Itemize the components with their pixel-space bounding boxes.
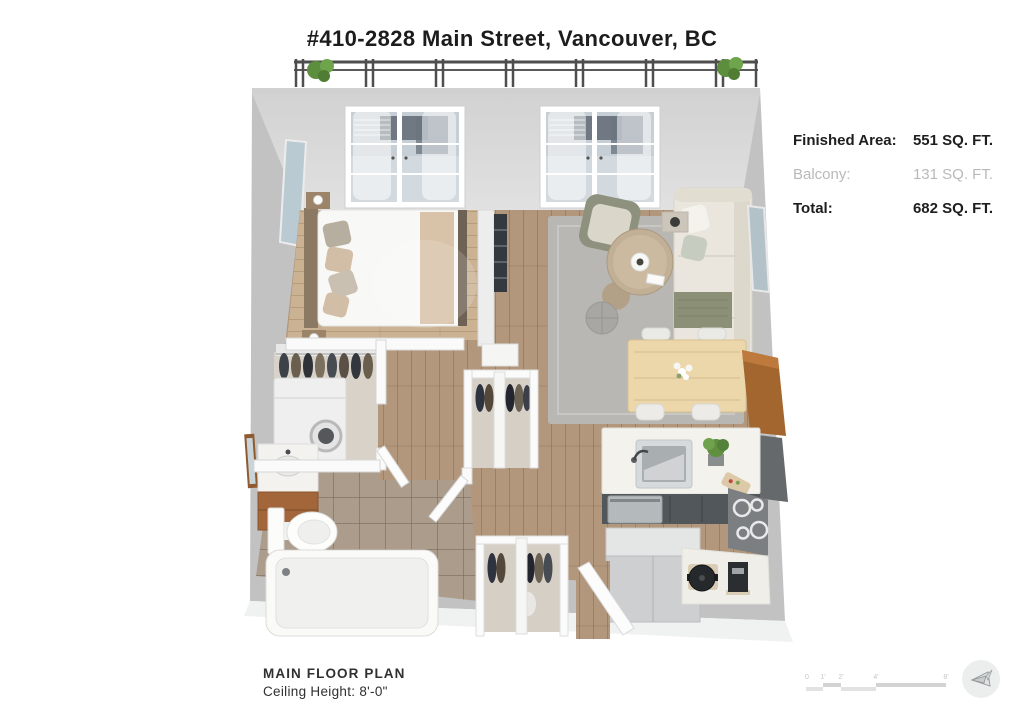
dining-chair (636, 404, 664, 420)
hallway-bookshelf (494, 214, 507, 292)
plan-footer: MAIN FLOOR PLAN Ceiling Height: 8'-0" (263, 666, 406, 699)
sofa-throw (674, 292, 732, 328)
dining-chair (692, 404, 720, 420)
page-title: #410-2828 Main Street, Vancouver, BC (0, 26, 1024, 52)
divider-wall (478, 210, 494, 346)
scale-tick-4: 4' (873, 674, 878, 681)
closet-middle (464, 370, 538, 468)
coffee-maker (726, 562, 750, 595)
ceiling-height: Ceiling Height: 8'-0" (263, 684, 406, 699)
closet-bottom (476, 536, 568, 636)
side-table (662, 212, 688, 232)
balcony-plant-right (717, 57, 743, 80)
floor-plan-svg (230, 56, 800, 671)
hall-cabinet (482, 344, 518, 366)
scale-tick-2: 2' (838, 674, 843, 681)
stat-row-balcony: Balcony: 131 SQ. FT. (793, 166, 993, 183)
dining-set (628, 328, 746, 420)
back-wall-top (252, 88, 760, 93)
finished-area-value: 551 SQ. FT. (913, 132, 993, 149)
ottoman (586, 302, 618, 334)
nightstand-top (306, 192, 330, 209)
brand-logo-icon (958, 656, 1004, 702)
closet-door-panel (516, 538, 527, 634)
balcony-label: Balcony: (793, 166, 851, 183)
finished-area-label: Finished Area: (793, 132, 897, 149)
french-door-living (540, 106, 660, 208)
cooktop-counter (728, 488, 768, 556)
tub-faucet (282, 568, 290, 576)
area-stats: Finished Area: 551 SQ. FT. Balcony: 131 … (793, 132, 993, 234)
total-value: 682 SQ. FT. (913, 200, 993, 217)
bedroom-sheer-light (373, 240, 477, 328)
floor-plan-render (230, 56, 800, 671)
plan-name: MAIN FLOOR PLAN (263, 666, 406, 681)
closet-door-panel (494, 372, 505, 468)
balcony-railing (294, 57, 758, 87)
stat-row-finished-area: Finished Area: 551 SQ. FT. (793, 132, 993, 149)
french-door-bedroom (345, 106, 465, 208)
scale-tick-0: 0 (805, 674, 809, 681)
kitchen-sink (631, 440, 692, 488)
scale-bar: 0 1' 2' 4' 8' (805, 674, 955, 696)
dishwasher (608, 496, 662, 523)
floor-plan-page: #410-2828 Main Street, Vancouver, BC Fin… (0, 0, 1024, 724)
scale-tick-1: 1' (820, 674, 825, 681)
balcony-value: 131 SQ. FT. (913, 166, 993, 183)
dining-chair-back (698, 328, 726, 340)
stat-row-total: Total: 682 SQ. FT. (793, 200, 993, 217)
bathtub (266, 550, 438, 636)
dining-chair-back (642, 328, 670, 340)
scale-tick-8: 8' (943, 674, 948, 681)
kitchen-counter-bottom (682, 548, 770, 604)
